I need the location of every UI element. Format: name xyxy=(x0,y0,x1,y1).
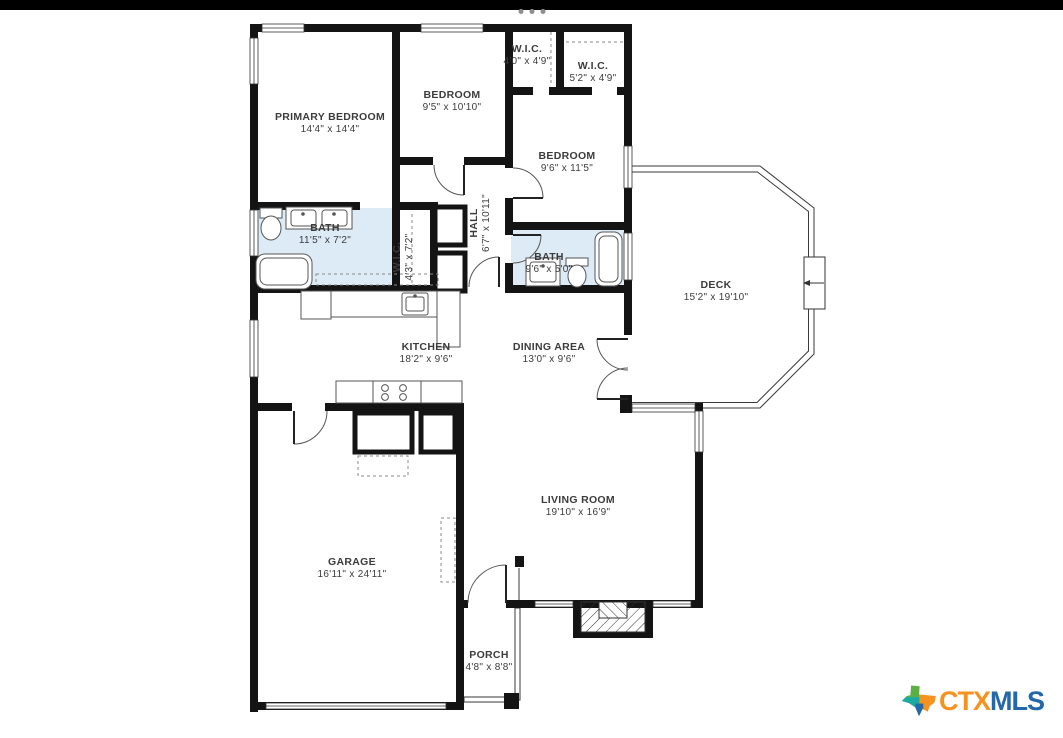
room-label-primary-bedroom: PRIMARY BEDROOM 14'4" x 14'4" xyxy=(275,111,385,137)
room-label-kitchen: KITCHEN 18'2" x 9'6" xyxy=(400,341,453,367)
room-label-living-room: LIVING ROOM 19'10" x 16'9" xyxy=(541,494,615,520)
room-label-deck: DECK 15'2" x 19'10" xyxy=(684,279,749,305)
screenshot-root: PRIMARY BEDROOM 14'4" x 14'4" BEDROOM 9'… xyxy=(0,0,1063,738)
stove xyxy=(373,381,421,403)
floor-plan-drawing xyxy=(0,0,1063,738)
room-label-garage: GARAGE 16'11" x 24'11" xyxy=(318,556,387,582)
fireplace xyxy=(581,602,645,632)
texas-icon xyxy=(901,684,937,718)
ctxmls-logo: CTXMLS xyxy=(901,684,1044,718)
porch-railing xyxy=(464,556,524,709)
room-label-porch: PORCH 4'8" x 8'8" xyxy=(465,649,512,675)
room-label-bedroom-3: BEDROOM 9'6" x 11'5" xyxy=(539,150,596,176)
ctxmls-wordmark: CTXMLS xyxy=(939,688,1044,715)
room-label-wic-2: W.I.C. 5'2" x 4'9" xyxy=(569,60,616,86)
room-label-wic-1: W.I.C. 4'0" x 4'9" xyxy=(503,43,550,69)
room-label-primary-bath: BATH 11'5" x 7'2" xyxy=(299,222,351,248)
room-label-bedroom-2: BEDROOM 9'5" x 10'10" xyxy=(423,89,482,115)
counter-return xyxy=(437,291,460,347)
floor-plan: PRIMARY BEDROOM 14'4" x 14'4" BEDROOM 9'… xyxy=(0,0,1063,738)
room-label-wic-3: W.I.C. 4'3" x 7'2" xyxy=(391,233,417,280)
room-label-hall-bath: BATH 9'6" x 5'0" xyxy=(525,251,572,277)
room-label-dining-area: DINING AREA 13'0" x 9'6" xyxy=(513,341,585,367)
room-label-hall: HALL 6'7" x 10'11" xyxy=(468,194,494,252)
fridge xyxy=(301,291,331,319)
